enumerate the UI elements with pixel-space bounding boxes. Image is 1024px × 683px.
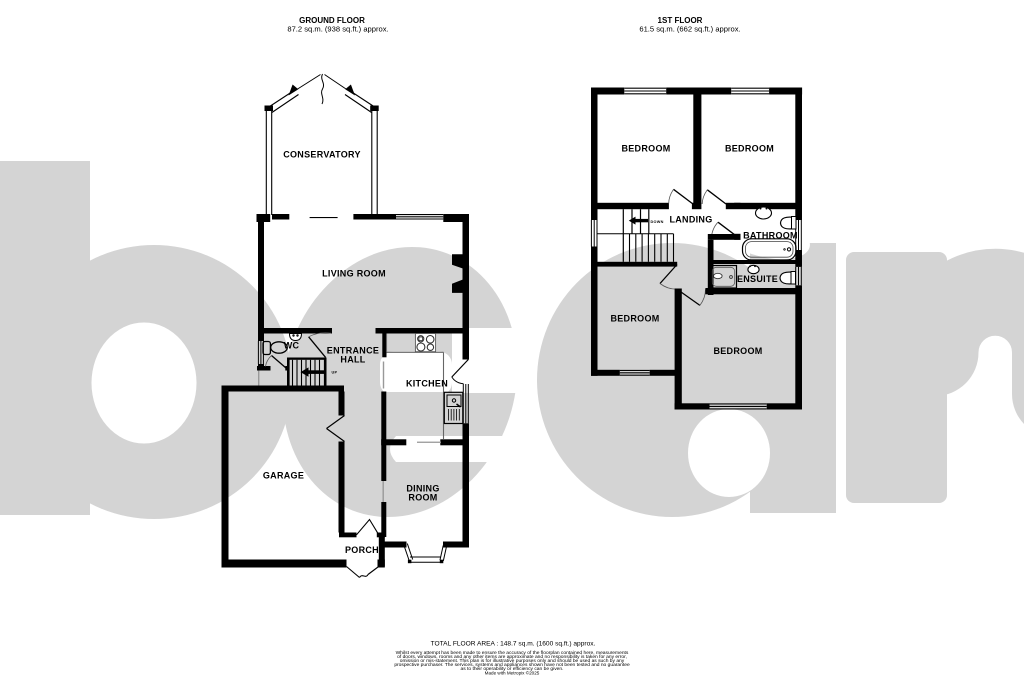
- svg-text:Made with Metropix ©2025: Made with Metropix ©2025: [485, 670, 540, 676]
- svg-text:BEDROOM: BEDROOM: [610, 314, 659, 324]
- svg-text:87.2 sq.m. (938 sq.ft.) approx: 87.2 sq.m. (938 sq.ft.) approx.: [287, 25, 388, 34]
- svg-text:ENSUITE: ENSUITE: [737, 274, 778, 284]
- svg-text:BEDROOM: BEDROOM: [725, 144, 774, 154]
- svg-text:ROOM: ROOM: [408, 493, 437, 503]
- svg-text:LANDING: LANDING: [669, 215, 712, 225]
- svg-text:WC: WC: [284, 341, 300, 351]
- svg-text:HALL: HALL: [340, 355, 365, 365]
- svg-text:TOTAL FLOOR AREA : 148.7 sq.m.: TOTAL FLOOR AREA : 148.7 sq.m. (1600 sq.…: [431, 641, 596, 648]
- svg-text:PORCH: PORCH: [345, 545, 379, 555]
- svg-text:CONSERVATORY: CONSERVATORY: [283, 150, 361, 160]
- svg-text:LIVING ROOM: LIVING ROOM: [322, 269, 386, 279]
- svg-text:BEDROOM: BEDROOM: [621, 144, 670, 154]
- svg-text:DOWN: DOWN: [651, 220, 664, 224]
- svg-text:BEDROOM: BEDROOM: [713, 346, 762, 356]
- svg-text:GARAGE: GARAGE: [263, 471, 304, 481]
- svg-text:UP: UP: [332, 370, 338, 374]
- svg-text:61.5 sq.m. (662 sq.ft.) approx: 61.5 sq.m. (662 sq.ft.) approx.: [639, 25, 740, 34]
- svg-text:KITCHEN: KITCHEN: [406, 379, 448, 389]
- svg-text:BATHROOM: BATHROOM: [743, 230, 798, 240]
